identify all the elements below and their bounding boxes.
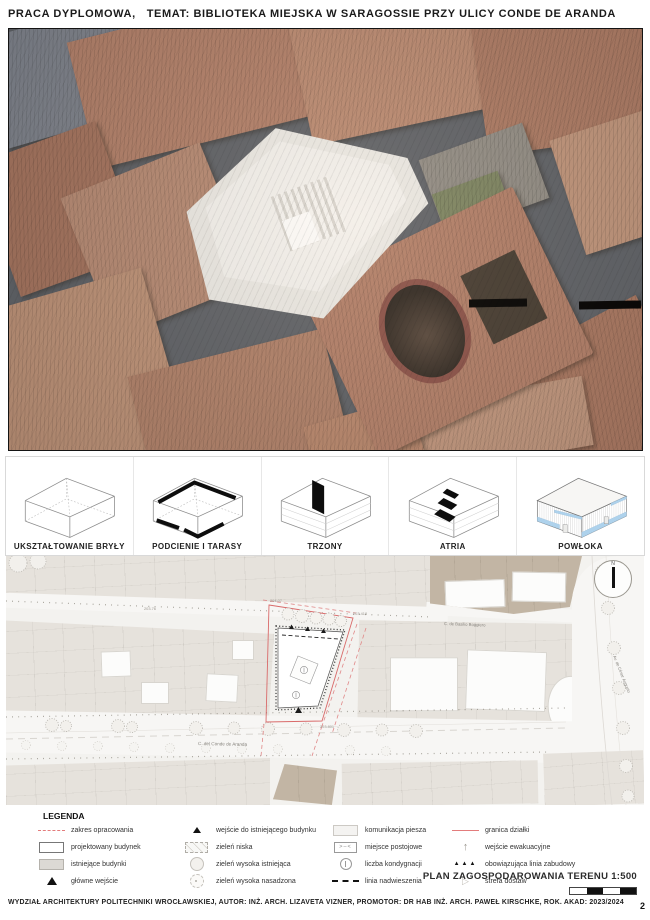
legend: LEGENDA zakres opracowania projektowany …	[0, 805, 650, 898]
elevation-label: 203.418	[353, 611, 367, 616]
axonometric-envelope-icon	[519, 468, 643, 540]
legend-item: zieleń wysoka istniejąca	[183, 858, 291, 870]
legend-label: projektowany budynek	[71, 844, 141, 851]
legend-label: zieleń niska	[216, 844, 253, 851]
header: PRACA DYPLOMOWA, TEMAT: BIBLIOTEKA MIEJS…	[0, 0, 650, 27]
plot-boundary-icon	[452, 830, 479, 831]
main-entrance-icon	[38, 877, 65, 885]
storey-count-icon	[332, 858, 359, 870]
legend-label: wejście do istniejącego budynku	[216, 827, 316, 834]
diagram-label: PODCIENIE I TARASY	[152, 542, 242, 551]
diagram-label: ATRIA	[440, 542, 466, 551]
legend-item: zieleń niska	[183, 841, 253, 853]
legend-item: liczba kondygnacji	[332, 858, 422, 870]
legend-title: LEGENDA	[43, 811, 85, 821]
legend-item: wejście do istniejącego budynku	[183, 824, 316, 836]
aerial-photo	[8, 28, 643, 451]
legend-item: komunikacja piesza	[332, 824, 426, 836]
legend-label: linia nadwieszenia	[365, 878, 422, 885]
plan-scale-bar	[569, 887, 637, 895]
legend-item: zakres opracowania	[38, 824, 133, 836]
diagram-cores: TRZONY	[261, 457, 389, 555]
parking-space-icon	[332, 842, 359, 853]
street-label-boggiero: C. de Basilio Boggiero	[444, 621, 486, 627]
legend-label: wejście ewakuacyjne	[485, 844, 550, 851]
proposed-building-icon	[38, 842, 65, 853]
axonometric-massing-icon	[7, 468, 131, 540]
existing-tree-icon	[183, 857, 210, 871]
axonometric-arcades-icon	[135, 468, 259, 540]
thesis-board: PRACA DYPLOMOWA, TEMAT: BIBLIOTEKA MIEJS…	[0, 0, 650, 920]
legend-label: granica działki	[485, 827, 529, 834]
legend-label: liczba kondygnacji	[365, 861, 422, 868]
diagram-atria: ATRIA	[388, 457, 516, 555]
legend-label: miejsce postojowe	[365, 844, 422, 851]
legend-item: projektowany budynek	[38, 841, 141, 853]
red-dashed-line-icon	[38, 830, 65, 831]
diagram-arcades-terraces: PODCIENIE I TARASY	[133, 457, 261, 555]
legend-label: istniejące budynki	[71, 861, 126, 868]
plan-title: PLAN ZAGOSPODAROWANIA TERENU 1:500	[423, 871, 637, 882]
legend-item: obowiązująca linia zabudowy	[452, 858, 575, 870]
legend-item: wejście ewakuacyjne	[452, 841, 550, 853]
pedestrian-route-icon	[332, 825, 359, 836]
building-line-icon	[452, 861, 479, 867]
low-greenery-icon	[183, 842, 210, 853]
legend-label: zieleń wysoka nasadzona	[216, 878, 296, 885]
legend-item: granica działki	[452, 824, 529, 836]
legend-item: zieleń wysoka nasadzona	[183, 875, 296, 887]
existing-buildings-icon	[38, 859, 65, 870]
massing-diagram-strip: UKSZTAŁTOWANIE BRYŁY PODCIENIE I TARASY	[5, 456, 645, 556]
page-title: PRACA DYPLOMOWA, TEMAT: BIBLIOTEKA MIEJS…	[0, 8, 616, 20]
overhang-line-icon	[332, 880, 359, 882]
site-plan: C. del Conde de Aranda C. de Basilio Bog…	[6, 556, 644, 806]
footer-credits: WYDZIAŁ ARCHITEKTURY POLITECHNIKI WROCŁA…	[8, 899, 623, 906]
diagram-label: UKSZTAŁTOWANIE BRYŁY	[14, 542, 125, 551]
legend-item: główne wejście	[38, 875, 118, 887]
legend-label: komunikacja piesza	[365, 827, 426, 834]
legend-label: zieleń wysoka istniejąca	[216, 861, 291, 868]
evacuation-entrance-icon	[452, 842, 479, 852]
legend-item: istniejące budynki	[38, 858, 126, 870]
street-label-conde: C. del Conde de Aranda	[198, 741, 248, 747]
diagram-label: POWŁOKA	[558, 542, 603, 551]
diagram-label: TRZONY	[307, 542, 342, 551]
elevation-label: 203.76	[144, 606, 156, 611]
planted-tree-icon	[183, 874, 210, 888]
legend-label: zakres opracowania	[71, 827, 133, 834]
page-number: 2	[640, 901, 645, 911]
diagram-massing: UKSZTAŁTOWANIE BRYŁY	[6, 457, 133, 555]
diagram-envelope: POWŁOKA	[516, 457, 644, 555]
legend-label: główne wejście	[71, 878, 118, 885]
axonometric-atria-icon	[391, 468, 515, 540]
plan-linework: C. del Conde de Aranda C. de Basilio Bog…	[6, 556, 644, 805]
axonometric-cores-icon	[263, 468, 387, 540]
elevation-label: 203.801	[320, 724, 334, 729]
legend-item: miejsce postojowe	[332, 841, 422, 853]
legend-item: linia nadwieszenia	[332, 875, 422, 887]
north-arrow: N	[594, 560, 632, 598]
legend-label: obowiązująca linia zabudowy	[485, 861, 575, 868]
existing-entrance-icon	[183, 827, 210, 833]
photo-texture-overlay	[9, 29, 642, 450]
north-needle	[612, 567, 615, 588]
elevation-label: 204.07	[270, 598, 282, 603]
